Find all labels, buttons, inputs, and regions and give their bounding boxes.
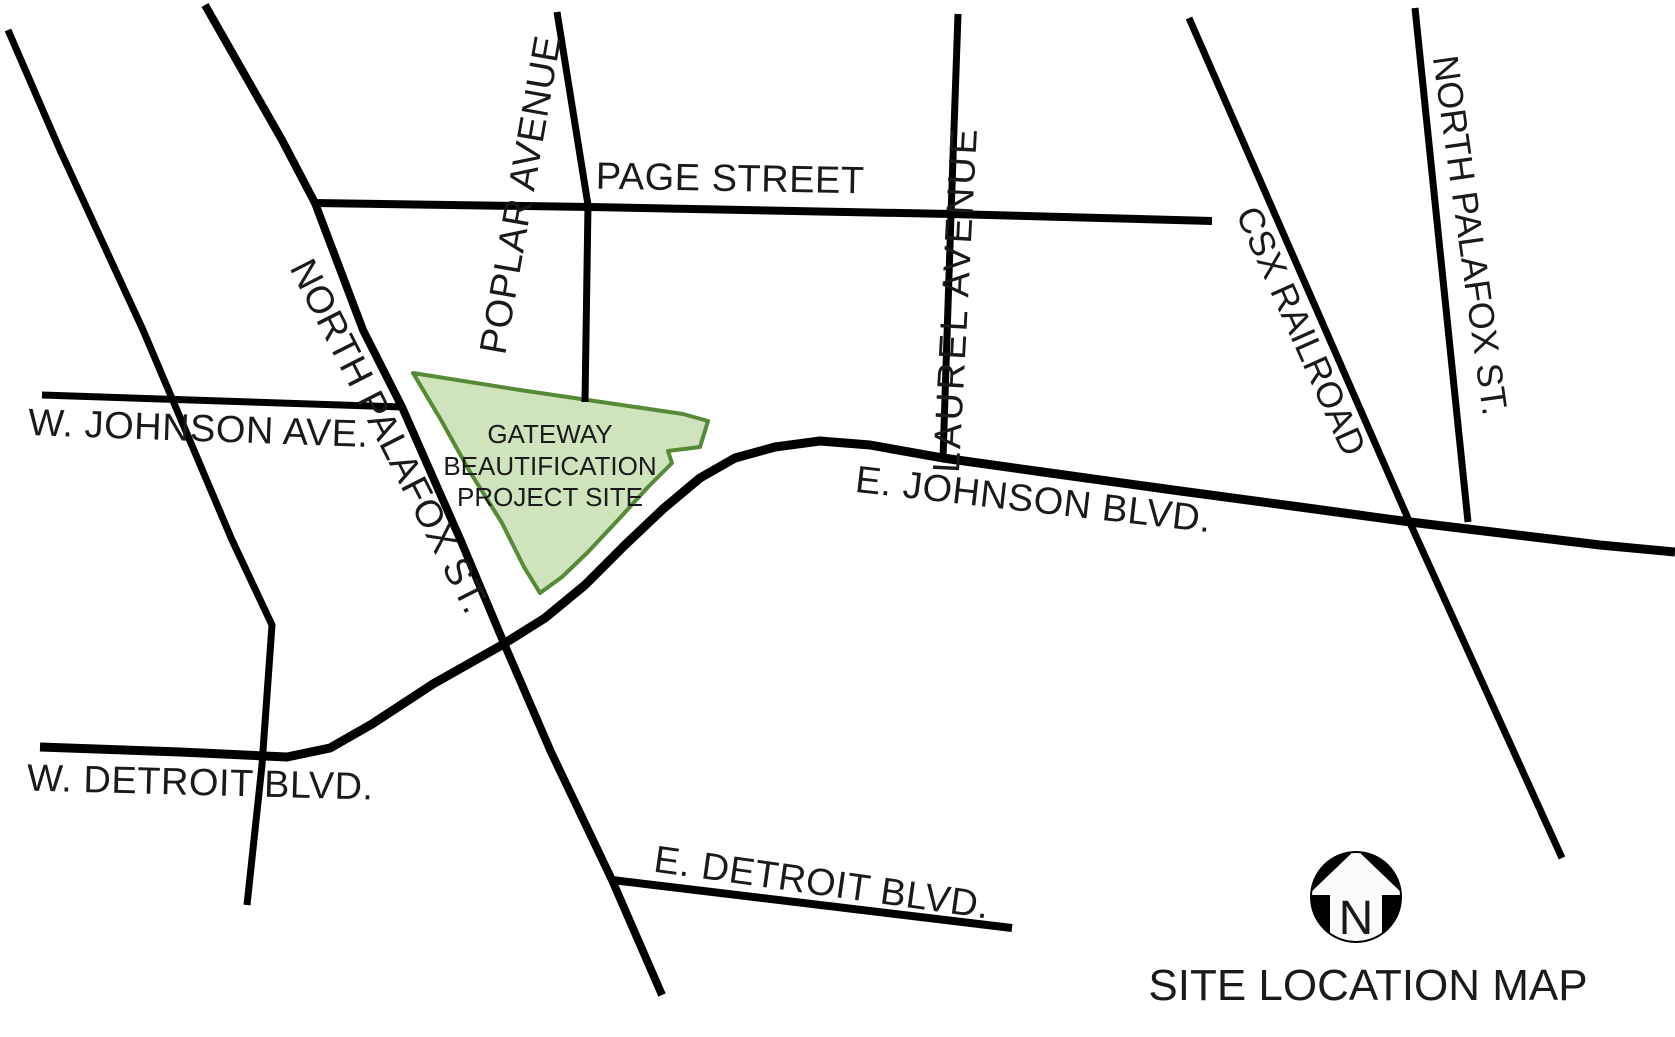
label-laurel-avenue: LAUREL AVENUE (926, 125, 986, 474)
site-label-line2: BEAUTIFICATION (443, 451, 656, 481)
map-title: SITE LOCATION MAP (1148, 961, 1587, 1010)
label-page-street: PAGE STREET (595, 156, 864, 203)
label-poplar-avenue: POPLAR AVENUE (472, 32, 569, 357)
map-canvas: PAGE STREET POPLAR AVENUE LAUREL AVENUE … (0, 0, 1675, 1037)
compass-n-label: N (1339, 892, 1374, 945)
label-csx-railroad: CSX RAILROAD (1228, 200, 1374, 462)
label-e-detroit-blvd: E. DETROIT BLVD. (651, 839, 992, 928)
site-label-line1: GATEWAY (487, 419, 612, 449)
label-w-detroit-blvd: W. DETROIT BLVD. (27, 757, 375, 808)
road-page-street (315, 203, 1212, 221)
label-w-johnson-ave: W. JOHNSON AVE. (28, 402, 370, 456)
road-csx-railroad (1189, 18, 1562, 858)
street-labels: PAGE STREET POPLAR AVENUE LAUREL AVENUE … (27, 32, 1516, 927)
site-label-line3: PROJECT SITE (457, 482, 643, 512)
road-network (8, 5, 1675, 995)
site-location-map: PAGE STREET POPLAR AVENUE LAUREL AVENUE … (0, 0, 1675, 1037)
compass-icon: N (1308, 849, 1404, 952)
